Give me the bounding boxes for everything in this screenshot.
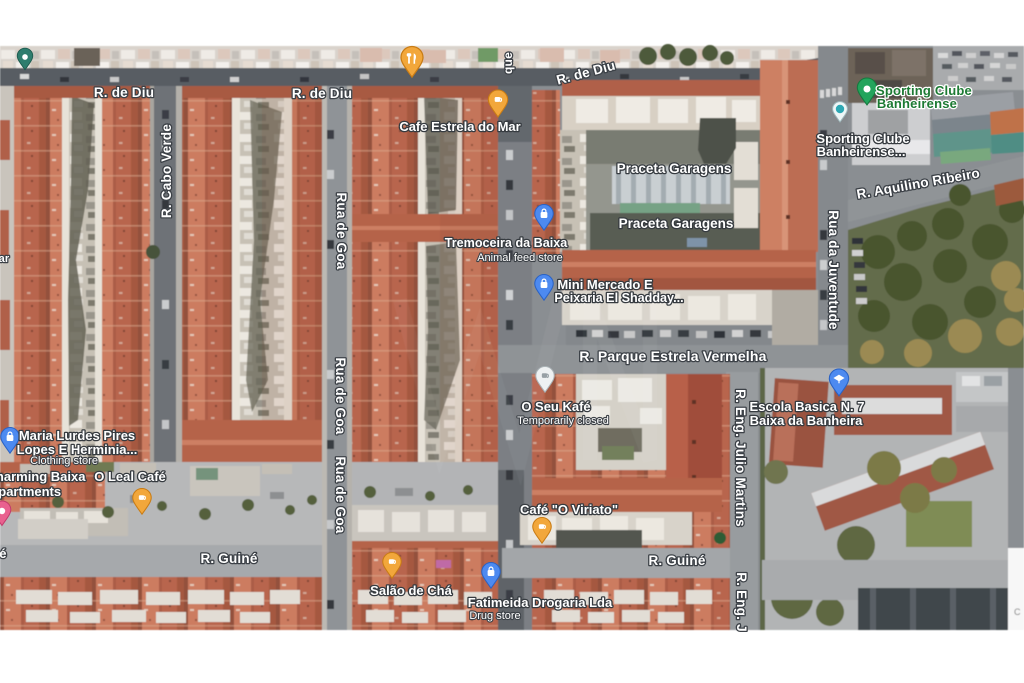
svg-text:Clothing store: Clothing store — [30, 455, 98, 467]
svg-text:Temporarily closed: Temporarily closed — [517, 415, 609, 427]
svg-text:Animal feed store: Animal feed store — [477, 252, 563, 264]
svg-text:R. Guiné: R. Guiné — [200, 551, 257, 566]
svg-text:Apartments: Apartments — [0, 484, 61, 499]
svg-text:Tremoceira da Baixa: Tremoceira da Baixa — [445, 236, 569, 250]
svg-text:que: que — [501, 52, 515, 74]
svg-text:Banheirense: Banheirense — [877, 96, 957, 111]
svg-text:Peixaria El Shadday...: Peixaria El Shadday... — [554, 291, 683, 305]
svg-text:C: C — [1014, 607, 1021, 617]
svg-text:R. Parque Estrela Vermelha: R. Parque Estrela Vermelha — [579, 348, 766, 364]
svg-text:Mini Mercado E: Mini Mercado E — [557, 277, 653, 292]
svg-text:Rua de Goa: Rua de Goa — [333, 456, 348, 533]
svg-text:R. Guiné: R. Guiné — [648, 553, 705, 568]
svg-text:R. Eng. J: R. Eng. J — [734, 572, 749, 632]
svg-text:O Leal Café: O Leal Café — [94, 469, 166, 484]
svg-text:O Seu Kafé: O Seu Kafé — [521, 399, 590, 414]
svg-text:ar: ar — [0, 253, 10, 265]
svg-text:Café "O Viriato": Café "O Viriato" — [520, 502, 618, 517]
svg-text:R. de Diu: R. de Diu — [292, 86, 352, 101]
svg-text:Baixa da Banheira: Baixa da Banheira — [750, 413, 863, 428]
svg-text:Maria Lurdes Pires: Maria Lurdes Pires — [19, 428, 135, 443]
svg-text:Rua de Goa: Rua de Goa — [333, 357, 348, 434]
svg-text:Cafe Estrela do Mar: Cafe Estrela do Mar — [399, 119, 520, 134]
svg-text:Drug store: Drug store — [469, 610, 520, 622]
svg-text:Charming Baixa: Charming Baixa — [0, 469, 86, 484]
svg-text:Fatimeida Drogaria Lda: Fatimeida Drogaria Lda — [468, 595, 613, 610]
svg-text:Banheirense...: Banheirense... — [817, 144, 906, 159]
svg-text:Rua da Juventude: Rua da Juventude — [826, 210, 841, 330]
svg-text:Praceta Garagens: Praceta Garagens — [617, 161, 732, 176]
svg-text:Escola Basica N. 7: Escola Basica N. 7 — [750, 399, 865, 414]
svg-text:R. Eng. Julio Martins: R. Eng. Julio Martins — [733, 389, 748, 527]
svg-text:Praceta Garagens: Praceta Garagens — [619, 216, 734, 231]
svg-text:R. de Diu: R. de Diu — [94, 85, 154, 100]
svg-text:é: é — [0, 546, 7, 561]
svg-text:R. Cabo Verde: R. Cabo Verde — [159, 124, 174, 218]
svg-text:Rua de Goa: Rua de Goa — [334, 192, 349, 269]
svg-text:Salão de Chá: Salão de Chá — [370, 583, 452, 598]
